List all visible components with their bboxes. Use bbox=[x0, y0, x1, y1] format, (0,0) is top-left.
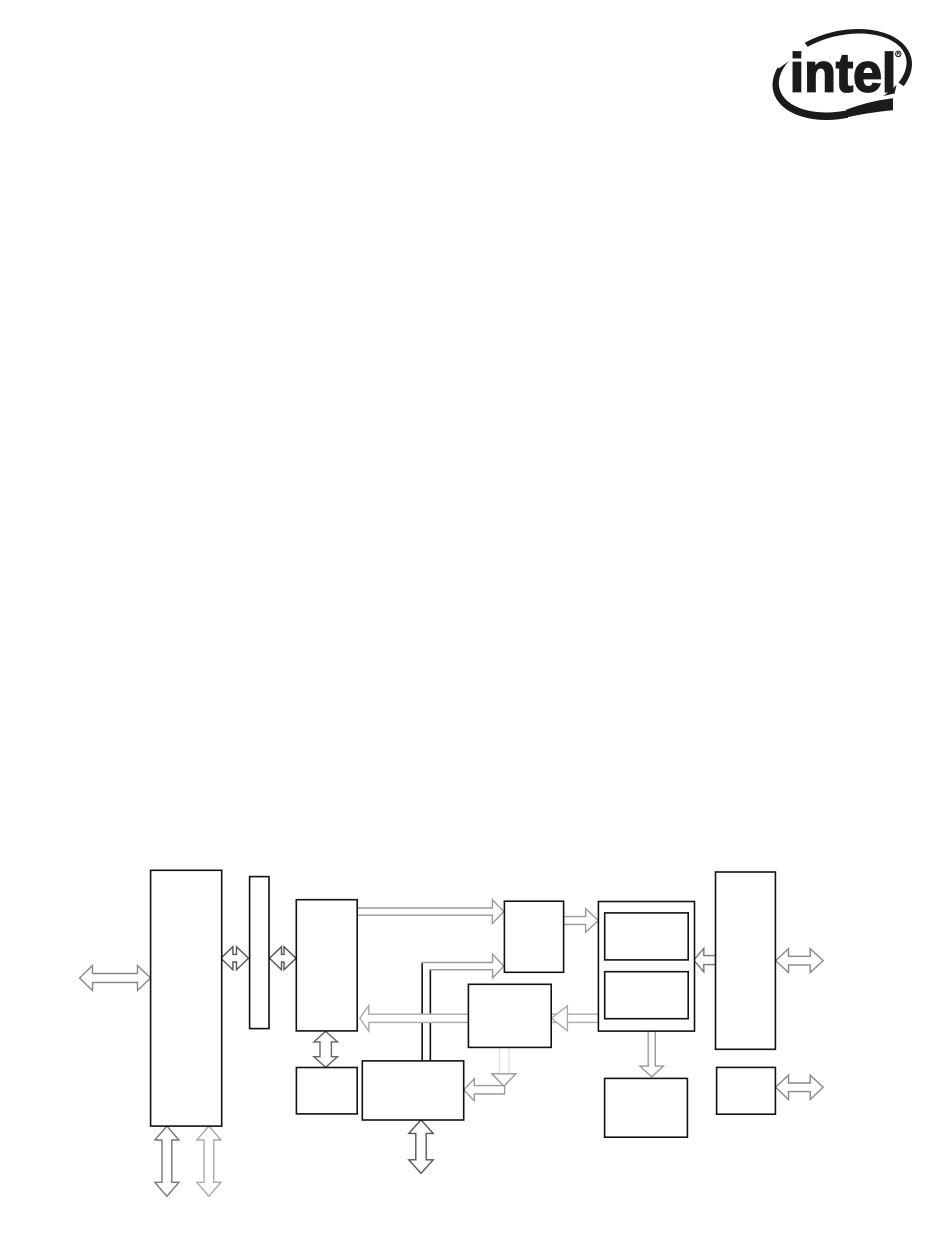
svg-text:intel: intel bbox=[790, 42, 897, 104]
